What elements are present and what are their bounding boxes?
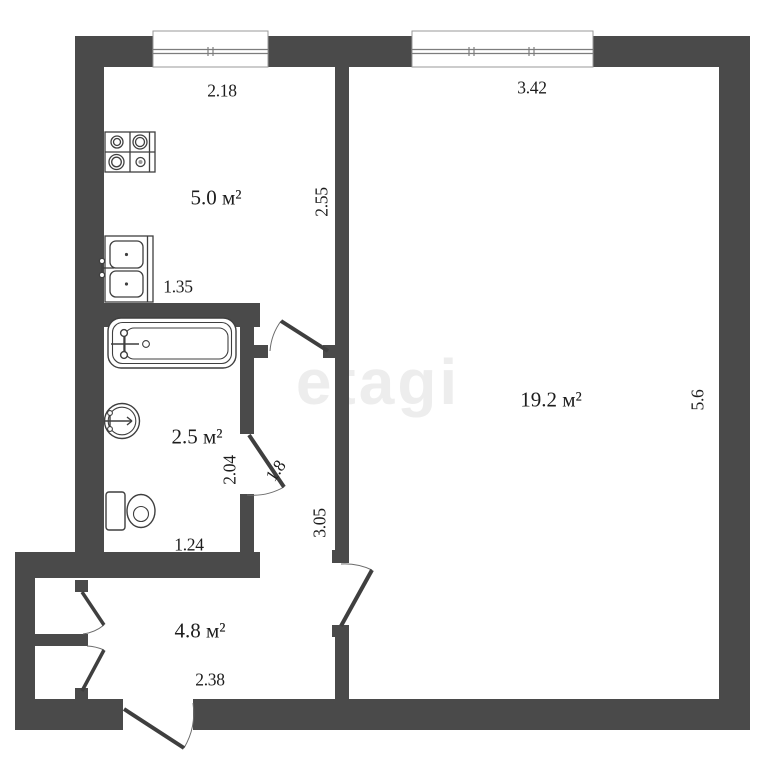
floor-plan-drawing (0, 0, 768, 768)
living-room-right-dim: 5.6 (689, 390, 707, 411)
living-room-top-dim: 3.42 (517, 79, 546, 97)
kitchen-top-dim: 2.18 (207, 82, 236, 100)
hallway-area-label: 4.8 м² (174, 621, 225, 642)
bathroom-right-dim: 2.04 (221, 455, 239, 484)
living-room-area-label: 19.2 м² (520, 390, 582, 411)
stove-icon (105, 132, 155, 172)
bathroom-area-label: 2.5 м² (171, 427, 222, 448)
living-room-window-icon (412, 31, 593, 67)
kitchen-right-dim: 2.55 (313, 187, 331, 216)
floor-plan: etagi (0, 0, 768, 768)
corridor-dim: 3.05 (311, 508, 329, 537)
kitchen-window-icon (153, 31, 268, 67)
living-room-door-icon (341, 564, 372, 626)
washbasin-icon (104, 404, 140, 439)
bathroom-bottom-dim: 1.24 (174, 536, 203, 554)
kitchen-sink-icon (99, 236, 153, 302)
kitchen-door-icon (270, 321, 328, 351)
closet-bottom-door-icon (82, 646, 104, 691)
kitchen-area-label: 5.0 м² (190, 188, 241, 209)
entry-door-icon (124, 703, 194, 748)
hallway-bottom-dim: 2.38 (195, 671, 224, 689)
kitchen-bottom-dim: 1.35 (163, 278, 192, 296)
bathtub-icon (108, 318, 236, 368)
closet-top-door-icon (82, 592, 104, 634)
toilet-icon (106, 492, 155, 530)
